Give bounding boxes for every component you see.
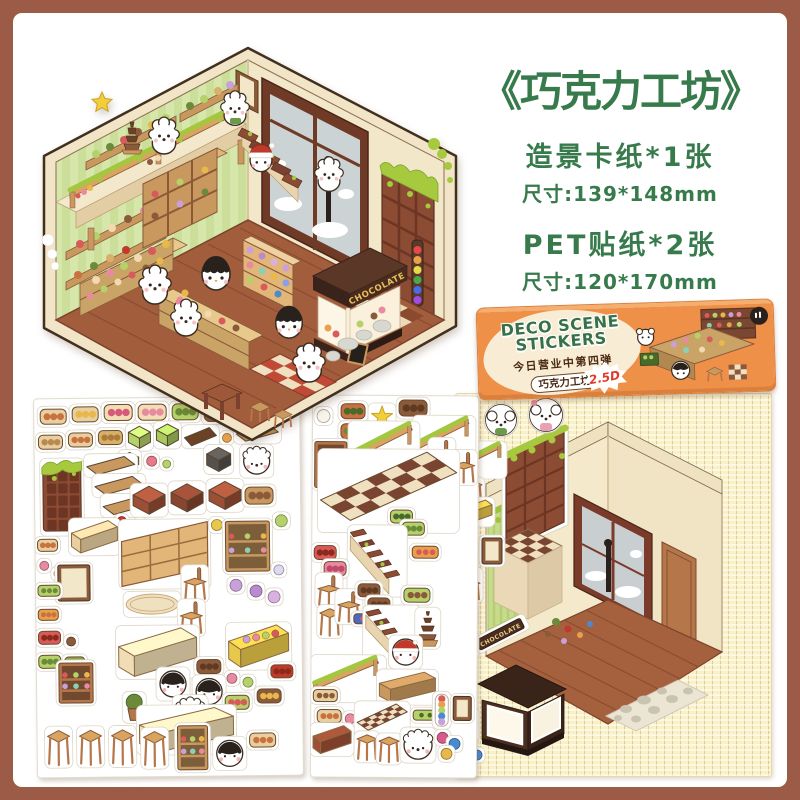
- sticker-item: [63, 634, 78, 649]
- sticker-item: [56, 660, 96, 706]
- dog-character: [315, 157, 344, 191]
- sticker-item: [240, 674, 256, 690]
- sticker-item: [268, 662, 296, 681]
- round-dog-sticker: [484, 403, 518, 437]
- sticker-item: [311, 722, 354, 756]
- sticker-item: [44, 726, 72, 768]
- sticker-item: [479, 535, 505, 567]
- sticker-sheet-left: [33, 396, 304, 779]
- spec-item-1: 造景卡纸*1张: [446, 135, 794, 174]
- sticker-item: [194, 656, 224, 676]
- penguin-character: [202, 256, 230, 290]
- dog-character: [139, 265, 171, 304]
- sticker-item: [37, 558, 52, 573]
- sticker-item: [311, 686, 341, 704]
- gold-star: [92, 92, 112, 111]
- dog-character: [293, 343, 325, 382]
- sticker-item: [388, 635, 422, 669]
- sticker-item: [35, 582, 63, 599]
- package-mini-scene: [635, 303, 774, 391]
- sticker-item: [204, 444, 234, 474]
- package-label-blob: DECO SCENE STICKERS 今日营业中第四弹 巧克力工坊: [480, 304, 644, 401]
- sticker-item: [160, 457, 174, 471]
- sticker-item: [254, 686, 284, 706]
- sticker-item: [108, 725, 136, 767]
- sticker-item: [438, 745, 455, 762]
- sticker-item: [432, 691, 451, 729]
- sticker-item: [181, 565, 209, 603]
- package-box: DECO SCENE STICKERS 今日营业中第四弹 巧克力工坊 2.5D: [476, 298, 777, 400]
- sticker-item: [68, 518, 120, 557]
- gumball-strip: [412, 240, 423, 306]
- sticker-item: [247, 730, 279, 750]
- sticker-item: [247, 582, 265, 600]
- spec-item-1-size: 尺寸:139*148mm: [446, 178, 794, 207]
- card-room-illustration: CHOCOLATE: [456, 394, 773, 778]
- sticker-item: [450, 693, 474, 723]
- spec-item-2: PET贴纸*2张: [446, 223, 794, 262]
- scene-backdrop-card: CHOCOLATE: [455, 393, 772, 777]
- sticker-item: [140, 727, 168, 769]
- product-listing-image: { "colors": { "frame": "#9b5b46", "green…: [0, 0, 800, 800]
- round-dog-sticker: [528, 397, 564, 433]
- sticker-item: [409, 543, 441, 561]
- sticker-item: [213, 736, 247, 770]
- sticker-item: [76, 726, 104, 768]
- sticker-item: [265, 588, 283, 606]
- sticker-item: [35, 606, 61, 623]
- sticker-item: [376, 733, 402, 765]
- sticker-item: [376, 669, 438, 705]
- sticker-item: [400, 727, 436, 763]
- dog-character: [149, 117, 180, 154]
- sticker-sheet-middle: [310, 394, 479, 778]
- sticker-item: [206, 478, 244, 512]
- sticker-item: [168, 481, 206, 515]
- product-title: 《巧克力工坊》: [446, 58, 794, 119]
- penguin-character: [276, 306, 303, 338]
- sticker-item: [222, 518, 273, 575]
- sticker-item: [240, 444, 274, 478]
- sticker-item: [401, 585, 433, 605]
- dog-character: [171, 299, 202, 336]
- sticker-item: [272, 512, 290, 530]
- sticker-item: [227, 576, 245, 594]
- sticker-item: [271, 562, 287, 578]
- mini-rug: [729, 364, 747, 380]
- main-scene-illustration: CHOCOLATE: [30, 44, 465, 444]
- sticker-item: [123, 591, 181, 618]
- sticker-item: [174, 723, 211, 773]
- sticker-item: [34, 536, 60, 554]
- sticker-item: [144, 453, 160, 469]
- spec-item-2-size: 尺寸:120*170mm: [446, 266, 794, 295]
- product-title-block: 《巧克力工坊》 造景卡纸*1张 尺寸:139*148mm PET贴纸*2张 尺寸…: [446, 58, 794, 295]
- sticker-item: [242, 484, 276, 507]
- sticker-item: [35, 628, 63, 647]
- sticker-item: [130, 483, 168, 517]
